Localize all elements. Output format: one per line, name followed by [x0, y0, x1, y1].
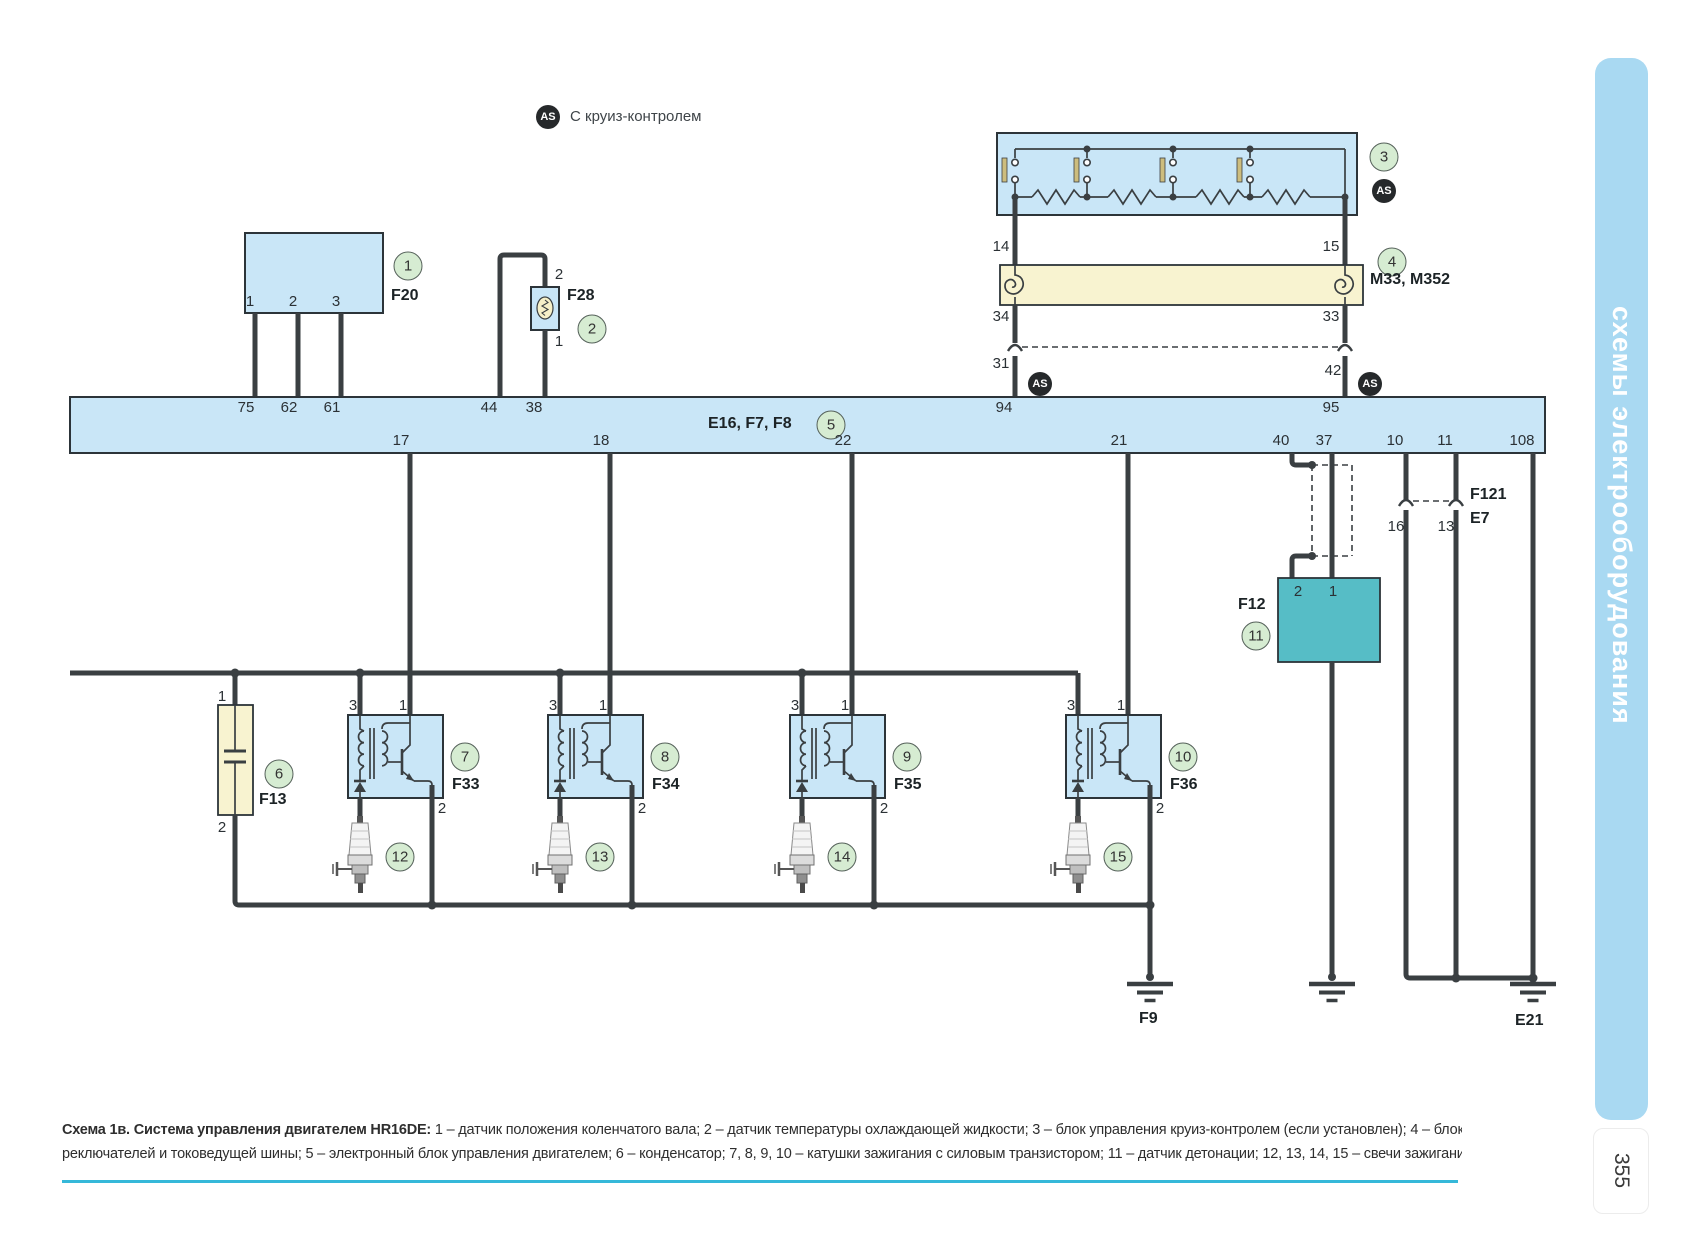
pin-label: 2 [1294, 583, 1302, 600]
callout-11: 11 [1242, 622, 1271, 651]
spark-plug-15 [1051, 816, 1090, 893]
pin-label: 2 [438, 800, 446, 817]
pin-label: 1 [218, 688, 226, 705]
pin-label: 2 [555, 266, 563, 283]
legend-text: С круиз-контролем [570, 108, 701, 125]
pin-label: 3 [1067, 697, 1075, 714]
pin-label: 38 [526, 399, 543, 416]
callout-7: 7 [451, 743, 480, 772]
callout-2: 2 [578, 315, 607, 344]
pin-label: 3 [332, 293, 340, 310]
label-ecu: E16, F7, F8 [708, 415, 792, 433]
pin-label: 1 [1117, 697, 1125, 714]
label-f35: F35 [894, 776, 922, 794]
cruise-control-unit [997, 133, 1357, 215]
pin-label: 18 [593, 432, 610, 449]
pin-label: 31 [993, 355, 1010, 372]
pin-label: 21 [1111, 432, 1128, 449]
spark-plug-13 [533, 816, 572, 893]
caption-rule [62, 1180, 1458, 1183]
schematic-page: AS С круиз-контролем 1 2 3 4 5 6 7 8 9 1… [0, 0, 1683, 1239]
pin-label: 11 [1437, 432, 1453, 449]
ignition-coil-f35 [790, 715, 885, 798]
caption-text: 1 – датчик положения коленчатого вала; 2… [431, 1122, 1462, 1138]
ignition-coil-f33 [348, 715, 443, 798]
pin-label: 3 [549, 697, 557, 714]
crank-position-sensor [245, 233, 383, 397]
pin-label: 17 [393, 432, 410, 449]
sidebar-title: схемы электрооборудования [1606, 58, 1637, 1120]
pin-label: 16 [1388, 518, 1405, 535]
caption-line-1: Схема 1в. Система управления двигателем … [62, 1122, 1462, 1138]
label-m33-m352: M33, M352 [1370, 271, 1450, 289]
spark-plug-12 [333, 816, 372, 893]
pin-label: 44 [481, 399, 498, 416]
pin-label: 42 [1325, 362, 1342, 379]
callout-14: 14 [828, 843, 857, 872]
label-f12: F12 [1238, 596, 1266, 614]
steering-bus-holder [1000, 199, 1363, 397]
caption-title: Схема 1в. Система управления двигателем … [62, 1122, 431, 1138]
ground-e21 [1510, 984, 1556, 1001]
callout-1: 1 [394, 252, 423, 281]
label-f20: F20 [391, 287, 419, 305]
pin-label: 62 [281, 399, 298, 416]
pin-label: 1 [1329, 583, 1337, 600]
ignition-coil-f36 [1066, 715, 1161, 798]
pin-label: 1 [599, 697, 607, 714]
callout-15: 15 [1104, 843, 1133, 872]
as-badge: AS [536, 105, 560, 129]
pin-label: 2 [289, 293, 297, 310]
pin-label: 1 [555, 333, 563, 350]
label-f13: F13 [259, 791, 287, 809]
label-e21: E21 [1515, 1012, 1543, 1030]
page-number-box: 355 [1593, 1128, 1649, 1214]
callout-10: 10 [1169, 743, 1198, 772]
label-f9: F9 [1139, 1010, 1158, 1028]
callout-9: 9 [893, 743, 922, 772]
pin-label: 10 [1387, 432, 1404, 449]
pin-label: 13 [1438, 518, 1455, 535]
pin-label: 33 [1323, 308, 1340, 325]
label-e7: E7 [1470, 510, 1490, 528]
page-number: 355 [1609, 1153, 1633, 1188]
caption-line-2: реключателей и токоведущей шины; 5 – эле… [62, 1146, 1462, 1162]
pin-label: 95 [1323, 399, 1340, 416]
pin-label: 3 [349, 697, 357, 714]
spark-plug-14 [775, 816, 814, 893]
pin-label: 2 [638, 800, 646, 817]
pin-label: 3 [791, 697, 799, 714]
label-f34: F34 [652, 776, 680, 794]
pin-label: 37 [1316, 432, 1333, 449]
knock-sensor [1278, 453, 1380, 981]
ground-f9 [1127, 984, 1173, 1001]
callout-13: 13 [586, 843, 615, 872]
pin-label: 15 [1323, 238, 1340, 255]
ignition-coil-f34 [548, 715, 643, 798]
pin-label: 108 [1509, 432, 1534, 449]
pin-label: 14 [993, 238, 1010, 255]
pin-label: 75 [238, 399, 255, 416]
as-badge: AS [1028, 372, 1052, 396]
pin-label: 22 [835, 432, 852, 449]
callout-8: 8 [651, 743, 680, 772]
wiring-svg [0, 0, 1683, 1239]
pin-label: 1 [246, 293, 254, 310]
connector-f121-e7 [1399, 453, 1538, 984]
callout-12: 12 [386, 843, 415, 872]
ground-knock [1309, 984, 1355, 1001]
coil-returns [360, 785, 1155, 981]
pin-label: 94 [996, 399, 1013, 416]
pin-label: 61 [324, 399, 341, 416]
pin-label: 1 [399, 697, 407, 714]
label-f121: F121 [1470, 486, 1506, 504]
pin-label: 2 [1156, 800, 1164, 817]
coolant-temp-sensor [500, 255, 559, 397]
pin-label: 2 [880, 800, 888, 817]
label-f28: F28 [567, 287, 595, 305]
pin-label: 40 [1273, 432, 1290, 449]
as-badge: AS [1372, 179, 1396, 203]
pin-label: 1 [841, 697, 849, 714]
as-badge: AS [1358, 372, 1382, 396]
pin-label: 34 [993, 308, 1010, 325]
callout-3: 3 [1370, 143, 1399, 172]
label-f36: F36 [1170, 776, 1198, 794]
label-f33: F33 [452, 776, 480, 794]
pin-label: 2 [218, 819, 226, 836]
sidebar-strip: схемы электрооборудования [1595, 58, 1648, 1120]
callout-6: 6 [265, 760, 294, 789]
